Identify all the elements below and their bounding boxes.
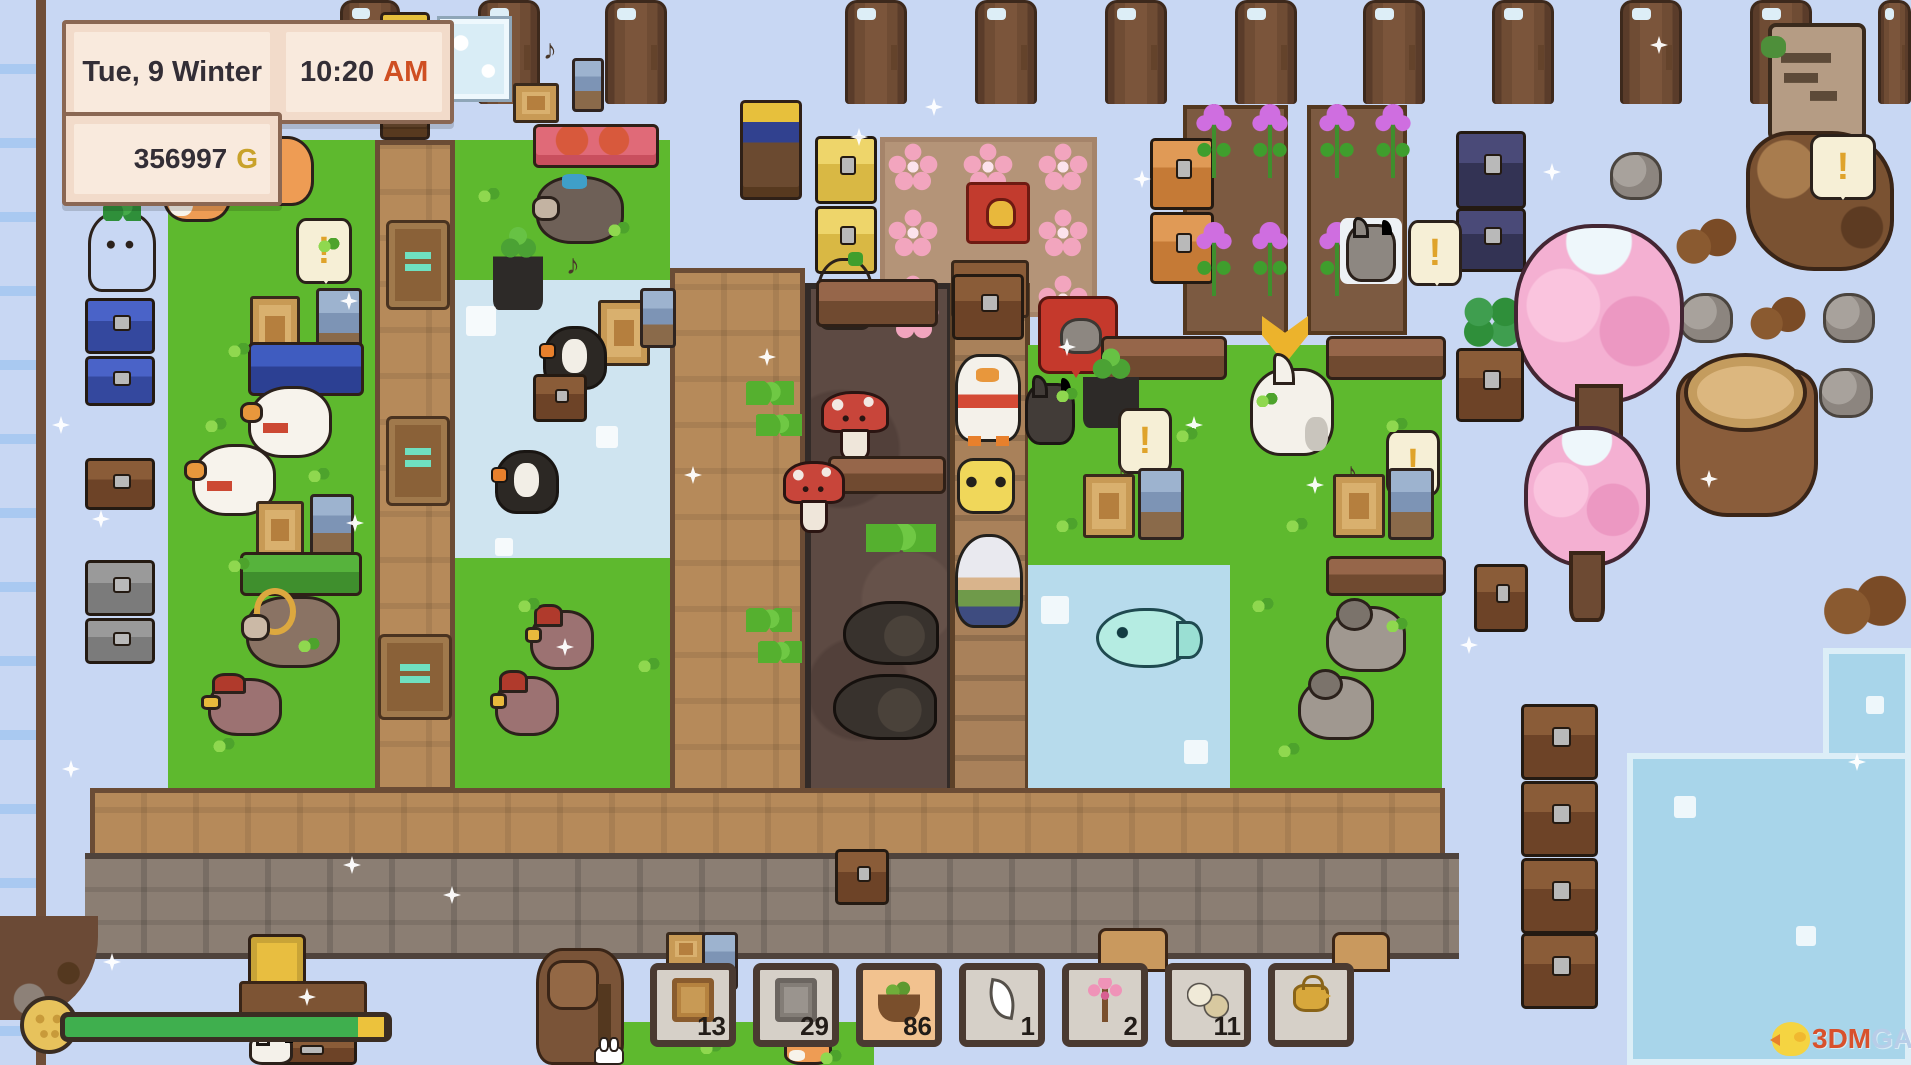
crate-tan-sprite[interactable] [1333, 474, 1385, 538]
flower-purple-sprite [1371, 104, 1415, 178]
banner-red-sprite[interactable] [966, 182, 1030, 244]
tuft-sprite [318, 238, 340, 252]
chick-mascot-icon [1772, 1022, 1810, 1056]
chest-brown-sprite[interactable] [1521, 933, 1598, 1009]
tuft-sprite [608, 222, 630, 236]
time-text: 10:20 [300, 56, 374, 89]
watermark-suffix: GAME [1871, 1023, 1911, 1055]
trunk-sprite [1492, 0, 1554, 104]
gate-sprite[interactable] [386, 416, 450, 506]
ice-square-sprite [1796, 926, 1816, 946]
tuft-sprite [1256, 393, 1278, 407]
tuft-sprite [1176, 428, 1198, 442]
ram-sprite[interactable] [246, 596, 340, 668]
watermark-brand: 3DM [1812, 1023, 1871, 1055]
progress-fill-green [65, 1017, 358, 1037]
tuft-sprite [1386, 418, 1408, 432]
crate-tan-sprite[interactable] [256, 501, 304, 559]
frog-sprite[interactable] [957, 458, 1015, 514]
trough-brown-sprite[interactable] [816, 279, 938, 327]
hotbar-slot-watering-can[interactable] [1268, 963, 1354, 1047]
hotbar-slot-stone-panel[interactable]: 29 [753, 963, 839, 1047]
ice-square-sprite [466, 306, 496, 336]
path-horizontal [90, 788, 1445, 858]
flower-stick-icon [1084, 978, 1126, 1022]
trough-brown-sprite[interactable] [1326, 336, 1446, 380]
ice-square-sprite [1674, 796, 1696, 818]
rock-sprite [1610, 152, 1662, 200]
dispenser-sprite[interactable] [640, 288, 676, 348]
feather-icon [985, 978, 1019, 1020]
chest-yellow-sprite[interactable] [815, 136, 877, 204]
sparkle-sprite [1460, 636, 1478, 654]
sparkle-sprite [925, 98, 943, 116]
bird-dark-sprite[interactable] [833, 674, 937, 740]
tuft-sprite [228, 558, 250, 572]
chest-brown-sprite[interactable] [1474, 564, 1528, 632]
sparkle-sprite [1543, 163, 1561, 181]
sprout-sprite [758, 641, 802, 663]
wolf-sprite[interactable] [1250, 368, 1334, 456]
board-sprite[interactable] [1768, 23, 1866, 141]
sprout-sprite [746, 381, 794, 405]
chicken-sprite[interactable] [495, 676, 559, 736]
flower-purple-sprite [1192, 104, 1236, 178]
trough-green-sprite[interactable] [240, 552, 362, 596]
tuft-sprite [820, 1050, 842, 1064]
trough-brown-sprite[interactable] [1326, 556, 1446, 596]
trunk-sprite [1105, 0, 1167, 104]
chicken-sprite[interactable] [530, 610, 594, 670]
note-sprite [543, 36, 569, 64]
money-amount: 356997 [134, 143, 227, 175]
trough-red-sprite[interactable] [533, 124, 659, 168]
npc-penguin-sprite[interactable] [955, 354, 1021, 442]
rock-sprite [1679, 293, 1733, 343]
chest-brown-sprite[interactable] [952, 274, 1024, 340]
tuft-sprite [213, 738, 235, 752]
hotbar-slot-food-bowl[interactable]: 86 [856, 963, 942, 1047]
hotbar-slot-flower-stick[interactable]: 2 [1062, 963, 1148, 1047]
item-count: 11 [1214, 1011, 1242, 1042]
flower-pink-sprite [887, 142, 939, 192]
bunny-white-sprite[interactable] [594, 1045, 624, 1065]
dispenser-sprite[interactable] [1138, 468, 1184, 540]
sparkle-sprite [1133, 170, 1151, 188]
flower-pink-sprite [1037, 208, 1089, 258]
progress-bar [60, 1012, 392, 1042]
sprout-sprite [746, 608, 792, 632]
chest-brown-sprite[interactable] [1521, 781, 1598, 857]
chest-brown-sprite[interactable] [1521, 704, 1598, 780]
tuft-sprite [205, 418, 227, 432]
tuft-sprite [638, 658, 660, 672]
chest-brown-sprite[interactable] [835, 849, 889, 905]
sparkle-sprite [62, 760, 80, 778]
sparkle-sprite [52, 416, 70, 434]
flower-purple-sprite [1248, 222, 1292, 296]
dispenser-sprite[interactable] [572, 58, 604, 112]
flower-pink-sprite [887, 208, 939, 258]
tuft-sprite [1056, 388, 1078, 402]
sprout-sprite [756, 414, 802, 436]
flower-purple-sprite [1192, 222, 1236, 296]
river [0, 0, 46, 1065]
item-count: 86 [903, 1011, 932, 1042]
crate-tan-sprite[interactable] [1083, 474, 1135, 538]
cat-gray-sprite[interactable] [1346, 224, 1396, 282]
gate-sprite[interactable] [386, 220, 450, 310]
tuft-sprite [1252, 598, 1274, 612]
tuft-sprite [298, 638, 320, 652]
item-count: 2 [1124, 1011, 1138, 1042]
chest-brown-sprite[interactable] [1521, 858, 1598, 934]
item-count: 29 [800, 1011, 829, 1042]
hotbar-slot-feather[interactable]: 1 [959, 963, 1045, 1047]
trunk-sprite [605, 0, 667, 104]
stump-sprite [1676, 369, 1818, 517]
money-display: 356997 G [74, 124, 270, 194]
ice-square-sprite [495, 538, 513, 556]
dispenser-sprite[interactable] [1388, 468, 1434, 540]
puffin-sprite[interactable] [495, 450, 559, 514]
money-panel: 356997 G [62, 112, 282, 206]
date-display: Tue, 9 Winter [74, 32, 270, 112]
flower-purple-sprite [1248, 104, 1292, 178]
trough-brown-sprite[interactable] [828, 456, 946, 494]
duck-sprite[interactable] [248, 386, 332, 458]
time-display: 10:20 AM [286, 32, 442, 112]
flower-purple-sprite [1315, 104, 1359, 178]
frozen-pond [1627, 753, 1911, 1065]
item-count: 13 [697, 1011, 726, 1042]
date-text: Tue, 9 Winter [82, 56, 262, 89]
sparkle-sprite [92, 510, 110, 528]
flower-stand-sprite [740, 100, 802, 200]
acorn-sprite [1749, 291, 1808, 347]
rock-sprite [1823, 293, 1875, 343]
mushroom-sprite[interactable] [821, 391, 889, 461]
ice-square-sprite [1866, 696, 1884, 714]
trunk-sprite [1620, 0, 1682, 104]
gate-sprite[interactable] [378, 634, 452, 720]
trunk-sprite [845, 0, 907, 104]
bird-gray-sprite[interactable] [1298, 676, 1374, 740]
chest-brown-sprite[interactable] [533, 374, 587, 422]
watering-can-icon [1293, 984, 1329, 1012]
radish-sprite[interactable] [88, 212, 156, 292]
flower-pink-sprite [1037, 142, 1089, 192]
bubble-excl-sprite[interactable] [1810, 134, 1876, 200]
acorn-sprite [1819, 574, 1911, 638]
tuft-sprite [1286, 518, 1308, 532]
currency-symbol: G [236, 143, 258, 175]
trunk-sprite [1878, 0, 1911, 104]
hotbar-slot-wood-panel[interactable]: 13 [650, 963, 736, 1047]
crate-tan-sprite[interactable] [513, 83, 559, 123]
bird-dark-sprite[interactable] [843, 601, 939, 665]
ice-square-sprite [1184, 740, 1208, 764]
tuft-sprite [478, 188, 500, 202]
ice-square-sprite [596, 426, 618, 448]
trunk-sprite [1363, 0, 1425, 104]
chest-navy-sprite[interactable] [1456, 131, 1526, 209]
cherry-tree-sprite [1524, 426, 1650, 622]
ice-square-sprite [1041, 596, 1069, 624]
bird-gray-sprite[interactable] [1326, 606, 1406, 672]
tuft-sprite [1386, 618, 1408, 632]
progress-fill-yellow [358, 1017, 384, 1037]
player-sprite[interactable] [955, 534, 1023, 628]
tuft-sprite [308, 468, 330, 482]
meridiem-text: AM [383, 56, 428, 89]
mushroom-sprite[interactable] [783, 461, 845, 533]
hotbar-slot-seeds[interactable]: 11 [1165, 963, 1251, 1047]
pot-sprout-sprite [493, 224, 543, 310]
game-scene: Tue, 9 Winter 10:20 AM 356997 G 13298612… [0, 0, 1911, 1065]
chest-blue-sprite[interactable] [85, 298, 155, 354]
trunk-sprite [975, 0, 1037, 104]
chest-brown-sprite[interactable] [1456, 348, 1524, 422]
trunk-sprite [1235, 0, 1297, 104]
tuft-sprite [228, 343, 250, 357]
chest-gray-sprite[interactable] [85, 560, 155, 616]
tuft-sprite [1056, 518, 1078, 532]
chest-gray-sprite[interactable] [85, 618, 155, 664]
fish-sprite[interactable] [1096, 608, 1192, 668]
sprout-sprite [866, 524, 936, 552]
watermark: 3DM GAME [1772, 1022, 1911, 1056]
chicken-sprite[interactable] [208, 678, 282, 736]
hotbar: 1329861211 [650, 963, 1354, 1047]
dispenser-sprite[interactable] [310, 494, 354, 558]
note-sprite [566, 251, 596, 281]
chest-brown-sprite[interactable] [85, 458, 155, 510]
item-count: 1 [1021, 1011, 1035, 1042]
crate-tan-sprite[interactable] [666, 932, 706, 966]
tuft-sprite [518, 598, 540, 612]
date-time-panel: Tue, 9 Winter 10:20 AM [62, 20, 454, 124]
chest-blue-sprite[interactable] [85, 356, 155, 406]
rock-sprite [1819, 368, 1873, 418]
tuft-sprite [1278, 743, 1300, 757]
bubble-excl-sprite[interactable] [1408, 220, 1462, 286]
